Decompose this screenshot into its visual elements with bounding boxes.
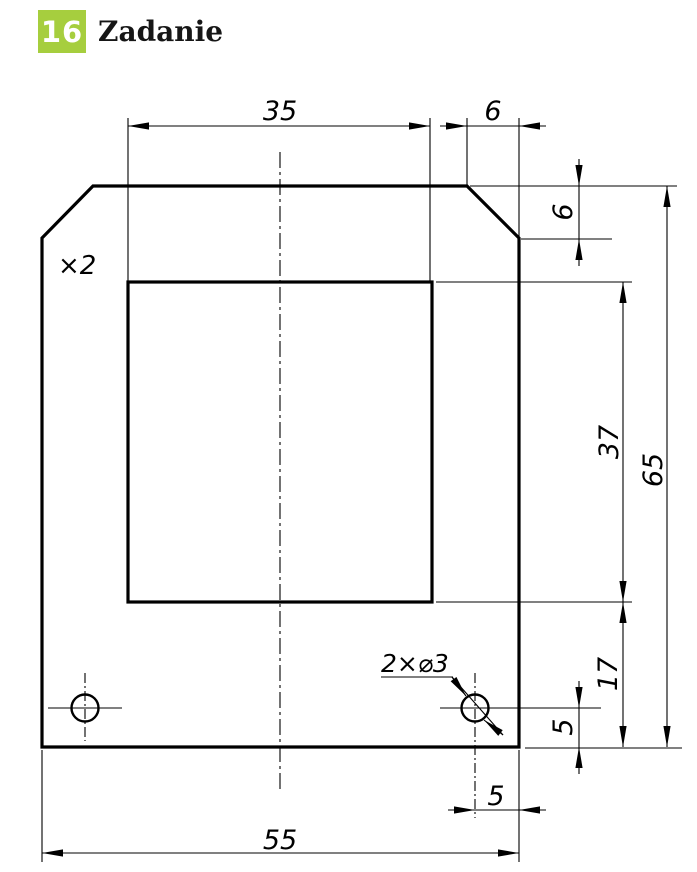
dim-chamfer-height: 6 [548,203,579,220]
dim-lower-height: 17 [593,657,624,691]
worksheet-page: 16 Zadanie [0,0,697,872]
hole-diameter-callout: 2×⌀3 [381,649,449,678]
hole-left [48,673,122,741]
dim-total-height: 65 [638,453,669,487]
dim-total-width: 55 [263,825,297,856]
dim-hole-side-offset: 5 [487,781,504,812]
task-number-badge: 16 [38,10,86,53]
task-header: 16 Zadanie [38,10,223,53]
dim-inner-height: 37 [594,425,625,459]
dimension-lines [42,126,667,853]
chamfer-multiplier-note: ×2 [58,251,96,281]
task-title: Zadanie [98,15,223,48]
hole-callout-leader [381,677,503,735]
dim-inner-width: 35 [263,96,297,127]
dim-chamfer-width: 6 [484,96,501,127]
extension-lines [42,118,682,862]
technical-drawing: 35 6 6 37 65 17 5 5 55 2×⌀3 ×2 [0,0,697,872]
dim-hole-bottom-offset: 5 [548,718,579,735]
